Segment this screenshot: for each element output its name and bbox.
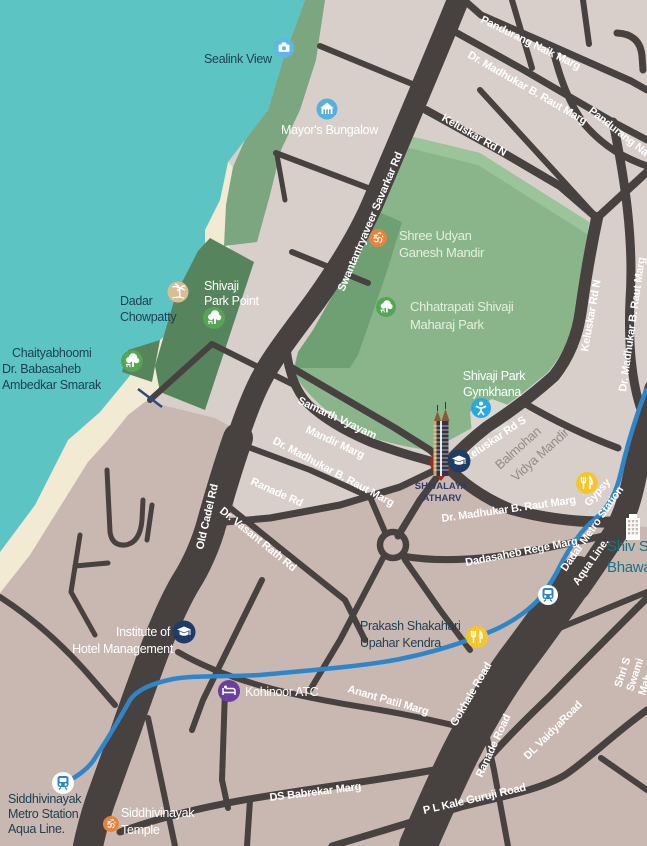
svg-text:Chaityabhoomi: Chaityabhoomi xyxy=(12,346,91,360)
svg-text:Bhawa: Bhawa xyxy=(607,559,647,576)
svg-text:ATHARV: ATHARV xyxy=(423,493,462,504)
svg-text:Shree Udyan: Shree Udyan xyxy=(399,228,472,243)
svg-text:Park Point: Park Point xyxy=(204,294,259,308)
svg-text:Dadar: Dadar xyxy=(120,294,153,308)
svg-text:Ambedkar Smarak: Ambedkar Smarak xyxy=(2,378,102,392)
svg-text:Maharaj Park: Maharaj Park xyxy=(410,317,485,332)
svg-text:Hotel Management: Hotel Management xyxy=(72,642,174,656)
svg-text:Gymkhana: Gymkhana xyxy=(463,385,521,399)
svg-text:Siddhivinayak: Siddhivinayak xyxy=(8,792,82,806)
svg-text:Temple: Temple xyxy=(121,823,160,837)
svg-text:Ganesh Mandir: Ganesh Mandir xyxy=(399,245,485,260)
svg-text:Shiv Se: Shiv Se xyxy=(607,538,647,555)
svg-text:Shivaji Park: Shivaji Park xyxy=(463,369,526,383)
svg-text:Upahar Kendra: Upahar Kendra xyxy=(360,636,441,650)
svg-text:Sealink View: Sealink View xyxy=(204,52,273,66)
svg-text:Aqua Line.: Aqua Line. xyxy=(8,822,65,836)
svg-text:SHIVALAYA: SHIVALAYA xyxy=(415,481,468,492)
svg-text:Dr. Babasaheb: Dr. Babasaheb xyxy=(2,362,81,376)
svg-text:Chowpatty: Chowpatty xyxy=(120,310,177,324)
svg-text:Prakash Shakahari: Prakash Shakahari xyxy=(360,619,461,633)
svg-text:Mayor's Bungalow: Mayor's Bungalow xyxy=(281,123,379,137)
svg-text:Metro Station: Metro Station xyxy=(8,807,79,821)
svg-text:Shivaji: Shivaji xyxy=(204,279,239,293)
svg-text:Siddhivinayak: Siddhivinayak xyxy=(121,806,195,820)
svg-text:Kohinoor ATC: Kohinoor ATC xyxy=(245,685,319,699)
svg-text:Chhatrapati Shivaji: Chhatrapati Shivaji xyxy=(410,299,514,314)
svg-text:Institute of: Institute of xyxy=(116,625,171,639)
